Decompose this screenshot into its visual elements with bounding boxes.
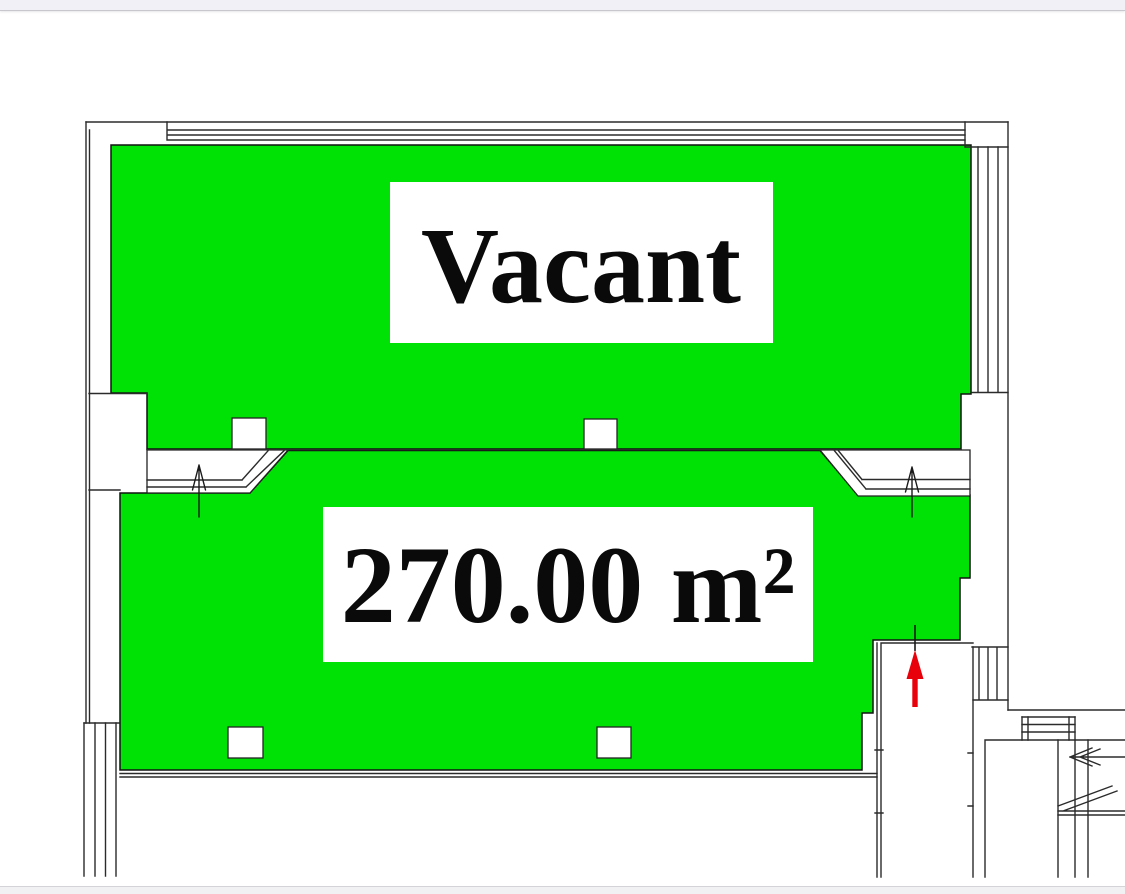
column: [232, 418, 266, 449]
floor-plan-svg: Vacant 270.00 m²: [0, 0, 1125, 894]
window-bottom-bar: [0, 886, 1125, 894]
room-area-label: 270.00 m²: [341, 524, 796, 646]
column: [584, 419, 617, 449]
stair-direction-arrow-icon: [1070, 748, 1125, 766]
column: [228, 727, 263, 758]
floor-plan-viewer: Vacant 270.00 m²: [0, 0, 1125, 894]
room-status-label: Vacant: [421, 207, 741, 326]
column: [597, 727, 631, 758]
window-top-bar: [0, 0, 1125, 11]
